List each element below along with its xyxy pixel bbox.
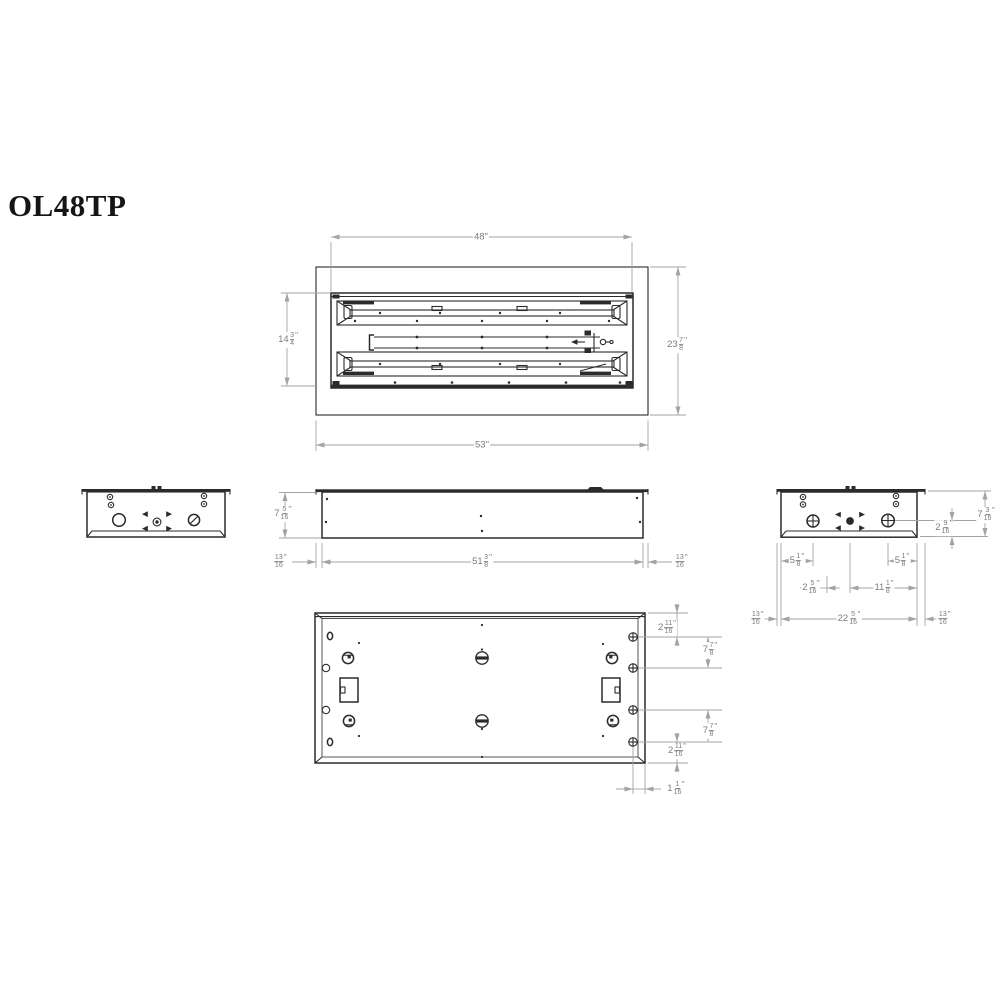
- dim-side-flange-right: 1316": [673, 554, 688, 570]
- dim-end-center-offset: 2516": [801, 580, 820, 596]
- front-flange-outline: [316, 267, 648, 415]
- lamp-trough-bottom: [337, 352, 627, 384]
- back-outline: [315, 613, 645, 763]
- dim-front-housing-width: 48": [473, 232, 489, 242]
- latch-detail: [571, 331, 613, 354]
- screw-holes: [107, 493, 206, 507]
- drawing-sheet: OL48TP 48" 53" 1434" 2378" 7516" 1316" 5…: [0, 0, 1000, 1000]
- center-knockouts: [476, 652, 488, 727]
- side-view: [316, 487, 648, 538]
- back-view: [315, 613, 645, 763]
- dim-end-flange-left: 1316": [749, 611, 764, 627]
- knockout-left: [807, 515, 820, 528]
- pilot-dots: [358, 624, 604, 758]
- lamp-trough-top: [337, 301, 627, 325]
- mounting-screws: [628, 632, 637, 746]
- dim-end-knockout-height: 2916": [934, 520, 953, 536]
- center-wireway: [370, 331, 614, 354]
- screw-holes: [800, 493, 898, 507]
- edge-slots: [322, 632, 332, 745]
- dim-end-height: 7316": [976, 507, 995, 523]
- mounting-clip-icon: [586, 487, 605, 491]
- technical-drawing: [0, 0, 1000, 1000]
- dim-end-flange-right: 1316": [936, 611, 951, 627]
- lamp-top: [350, 310, 614, 316]
- dim-front-overall-width: 53": [474, 440, 490, 450]
- dim-end-width: 22516": [837, 611, 862, 627]
- left-end-view: [82, 486, 230, 537]
- dim-side-flange-left: 1316": [272, 554, 287, 570]
- wiring-hole: [113, 514, 126, 527]
- page-title: OL48TP: [8, 188, 126, 224]
- knockout-right: [881, 514, 895, 528]
- dim-back-bottom-offset: 21116": [667, 743, 687, 759]
- knockout: [188, 514, 199, 525]
- corner-latch-marks: [333, 295, 633, 386]
- dim-back-hole-span-top: 778": [702, 642, 719, 658]
- dim-side-height: 7516": [273, 506, 292, 522]
- dim-back-edge-offset: 1116": [666, 781, 685, 797]
- right-end-view: [777, 486, 925, 537]
- wiring-access-cutouts: [340, 678, 620, 702]
- lamp-bottom: [350, 361, 614, 367]
- front-view: [316, 267, 648, 415]
- dim-end-knockout-left: 518": [789, 553, 806, 569]
- center-stud: [835, 512, 865, 531]
- dim-end-knockout-span: 1118": [873, 580, 894, 596]
- dim-end-knockout-right: 518": [894, 553, 911, 569]
- dim-back-hole-span-bottom: 778": [702, 723, 719, 739]
- center-stud: [142, 511, 172, 531]
- dim-side-length: 5138": [471, 554, 493, 570]
- dim-front-overall-height: 2378": [666, 337, 688, 353]
- dim-front-inner-height: 1434": [277, 332, 299, 348]
- dim-back-top-offset: 21116": [657, 620, 677, 636]
